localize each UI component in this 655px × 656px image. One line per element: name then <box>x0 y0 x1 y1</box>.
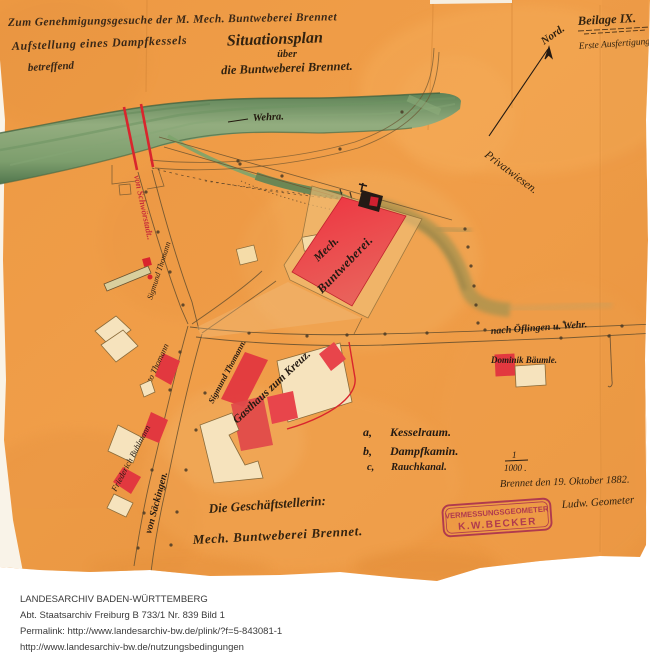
svg-text:Dominik Bäumle.: Dominik Bäumle. <box>490 355 557 365</box>
svg-text:Situationsplan: Situationsplan <box>227 29 324 49</box>
svg-text:über: über <box>277 49 298 60</box>
svg-text:Wehra.: Wehra. <box>253 111 285 124</box>
svg-text:http://www.landesarchiv-bw.de/: http://www.landesarchiv-bw.de/nutzungsbe… <box>20 642 244 653</box>
svg-text:1: 1 <box>512 450 517 460</box>
svg-text:betreffend: betreffend <box>28 60 75 74</box>
svg-text:LANDESARCHIV BADEN-WÜRTTEMBERG: LANDESARCHIV BADEN-WÜRTTEMBERG <box>20 594 208 605</box>
svg-text:Abt. Staatsarchiv Freiburg B 7: Abt. Staatsarchiv Freiburg B 733/1 Nr. 8… <box>20 610 225 621</box>
svg-text:Permalink: http://www.landesar: Permalink: http://www.landesarchiv-bw.de… <box>20 626 282 637</box>
svg-text:1000 .: 1000 . <box>504 463 527 473</box>
